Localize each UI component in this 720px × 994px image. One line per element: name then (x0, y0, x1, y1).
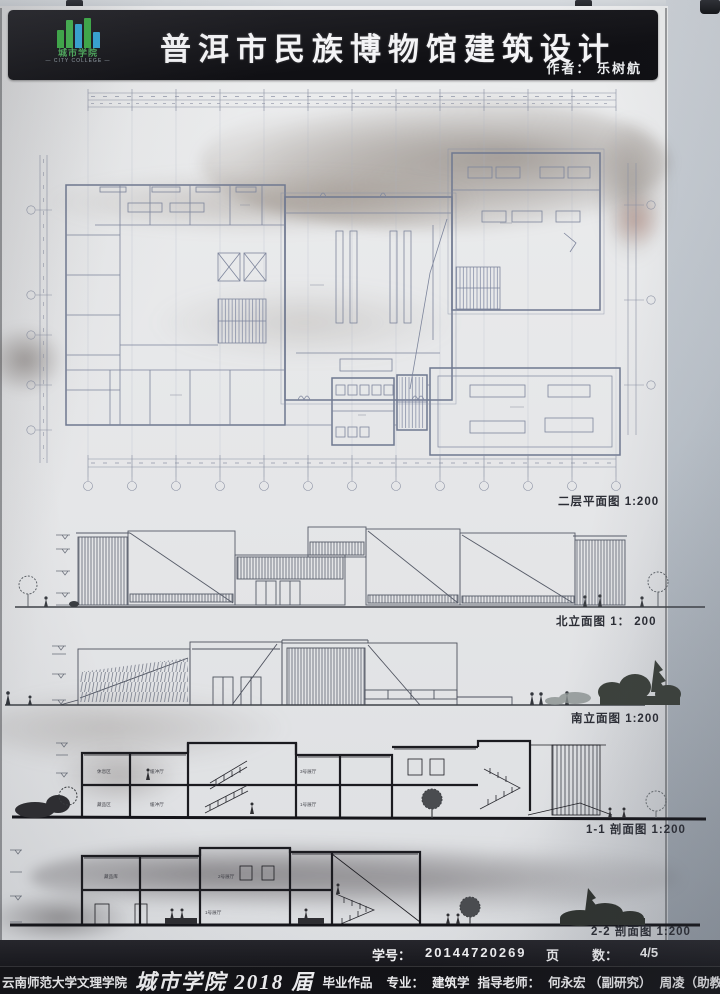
work-type: 毕业作品 (323, 972, 373, 991)
advisor-1: 何永宏 （副研究） (548, 972, 651, 991)
pages-label: 页 (546, 945, 559, 964)
north-elevation-caption: 北立面图 1： 200 (556, 613, 656, 629)
binder-clip-icon (700, 0, 720, 14)
plan-caption: 二层平面图 1:200 (558, 493, 659, 509)
section-1-1-caption: 1-1 剖面图 1:200 (586, 821, 686, 837)
section-1-1-drawing: 休息区 缓冲厅 3号展厅 藏品区 缓冲厅 1号展厅 (0, 733, 720, 833)
room-label: 缓冲厅 (150, 768, 164, 775)
room-label: 1号展厅 (205, 910, 222, 916)
title-bar: 城市学院 — CITY COLLEGE — 普洱市民族博物馆建筑设计 作者： 乐… (8, 10, 658, 80)
room-label: 休息区 (97, 768, 111, 775)
count-label: 数： (592, 945, 618, 964)
author-credit: 作者： 乐树航 (546, 58, 642, 77)
room-label: 缓冲厅 (150, 801, 164, 808)
pages-value: 4/5 (640, 945, 658, 960)
major-label: 专业： (387, 972, 425, 991)
student-info-bar: 学号： 20144720269 页 数： 4/5 (0, 940, 720, 966)
section-2-2-caption: 2-2 剖面图 1:200 (591, 923, 691, 939)
university-name: 云南师范大学文理学院 (2, 972, 127, 991)
logo-subtext: — CITY COLLEGE — (34, 58, 122, 65)
room-label: 藏品库 (104, 873, 118, 880)
floor-plan-drawing (0, 85, 720, 515)
student-id-value: 20144720269 (425, 945, 527, 960)
major-value: 建筑学 (432, 972, 470, 991)
room-label: 藏品区 (97, 801, 111, 808)
city-college-logo-icon: 城市学院 — CITY COLLEGE — (34, 16, 122, 76)
student-id-label: 学号： (372, 945, 411, 964)
photo-of-poster: 城市学院 — CITY COLLEGE — 普洱市民族博物馆建筑设计 作者： 乐… (0, 0, 720, 994)
advisor-label: 指导老师： (478, 972, 541, 991)
logo-text: 城市学院 (34, 48, 122, 58)
south-elevation-caption: 南立面图 1:200 (571, 710, 660, 726)
room-label: 1号展厅 (300, 802, 317, 808)
room-label: 3号展厅 (300, 769, 317, 775)
school-script-title: 城市学院 2018 届 (135, 966, 315, 994)
room-label: 2号展厅 (218, 874, 235, 880)
advisor-2: 周凌（助教 (660, 972, 720, 991)
credit-bar: 云南师范大学文理学院 城市学院 2018 届 毕业作品 专业： 建筑学 指导老师… (0, 966, 720, 994)
